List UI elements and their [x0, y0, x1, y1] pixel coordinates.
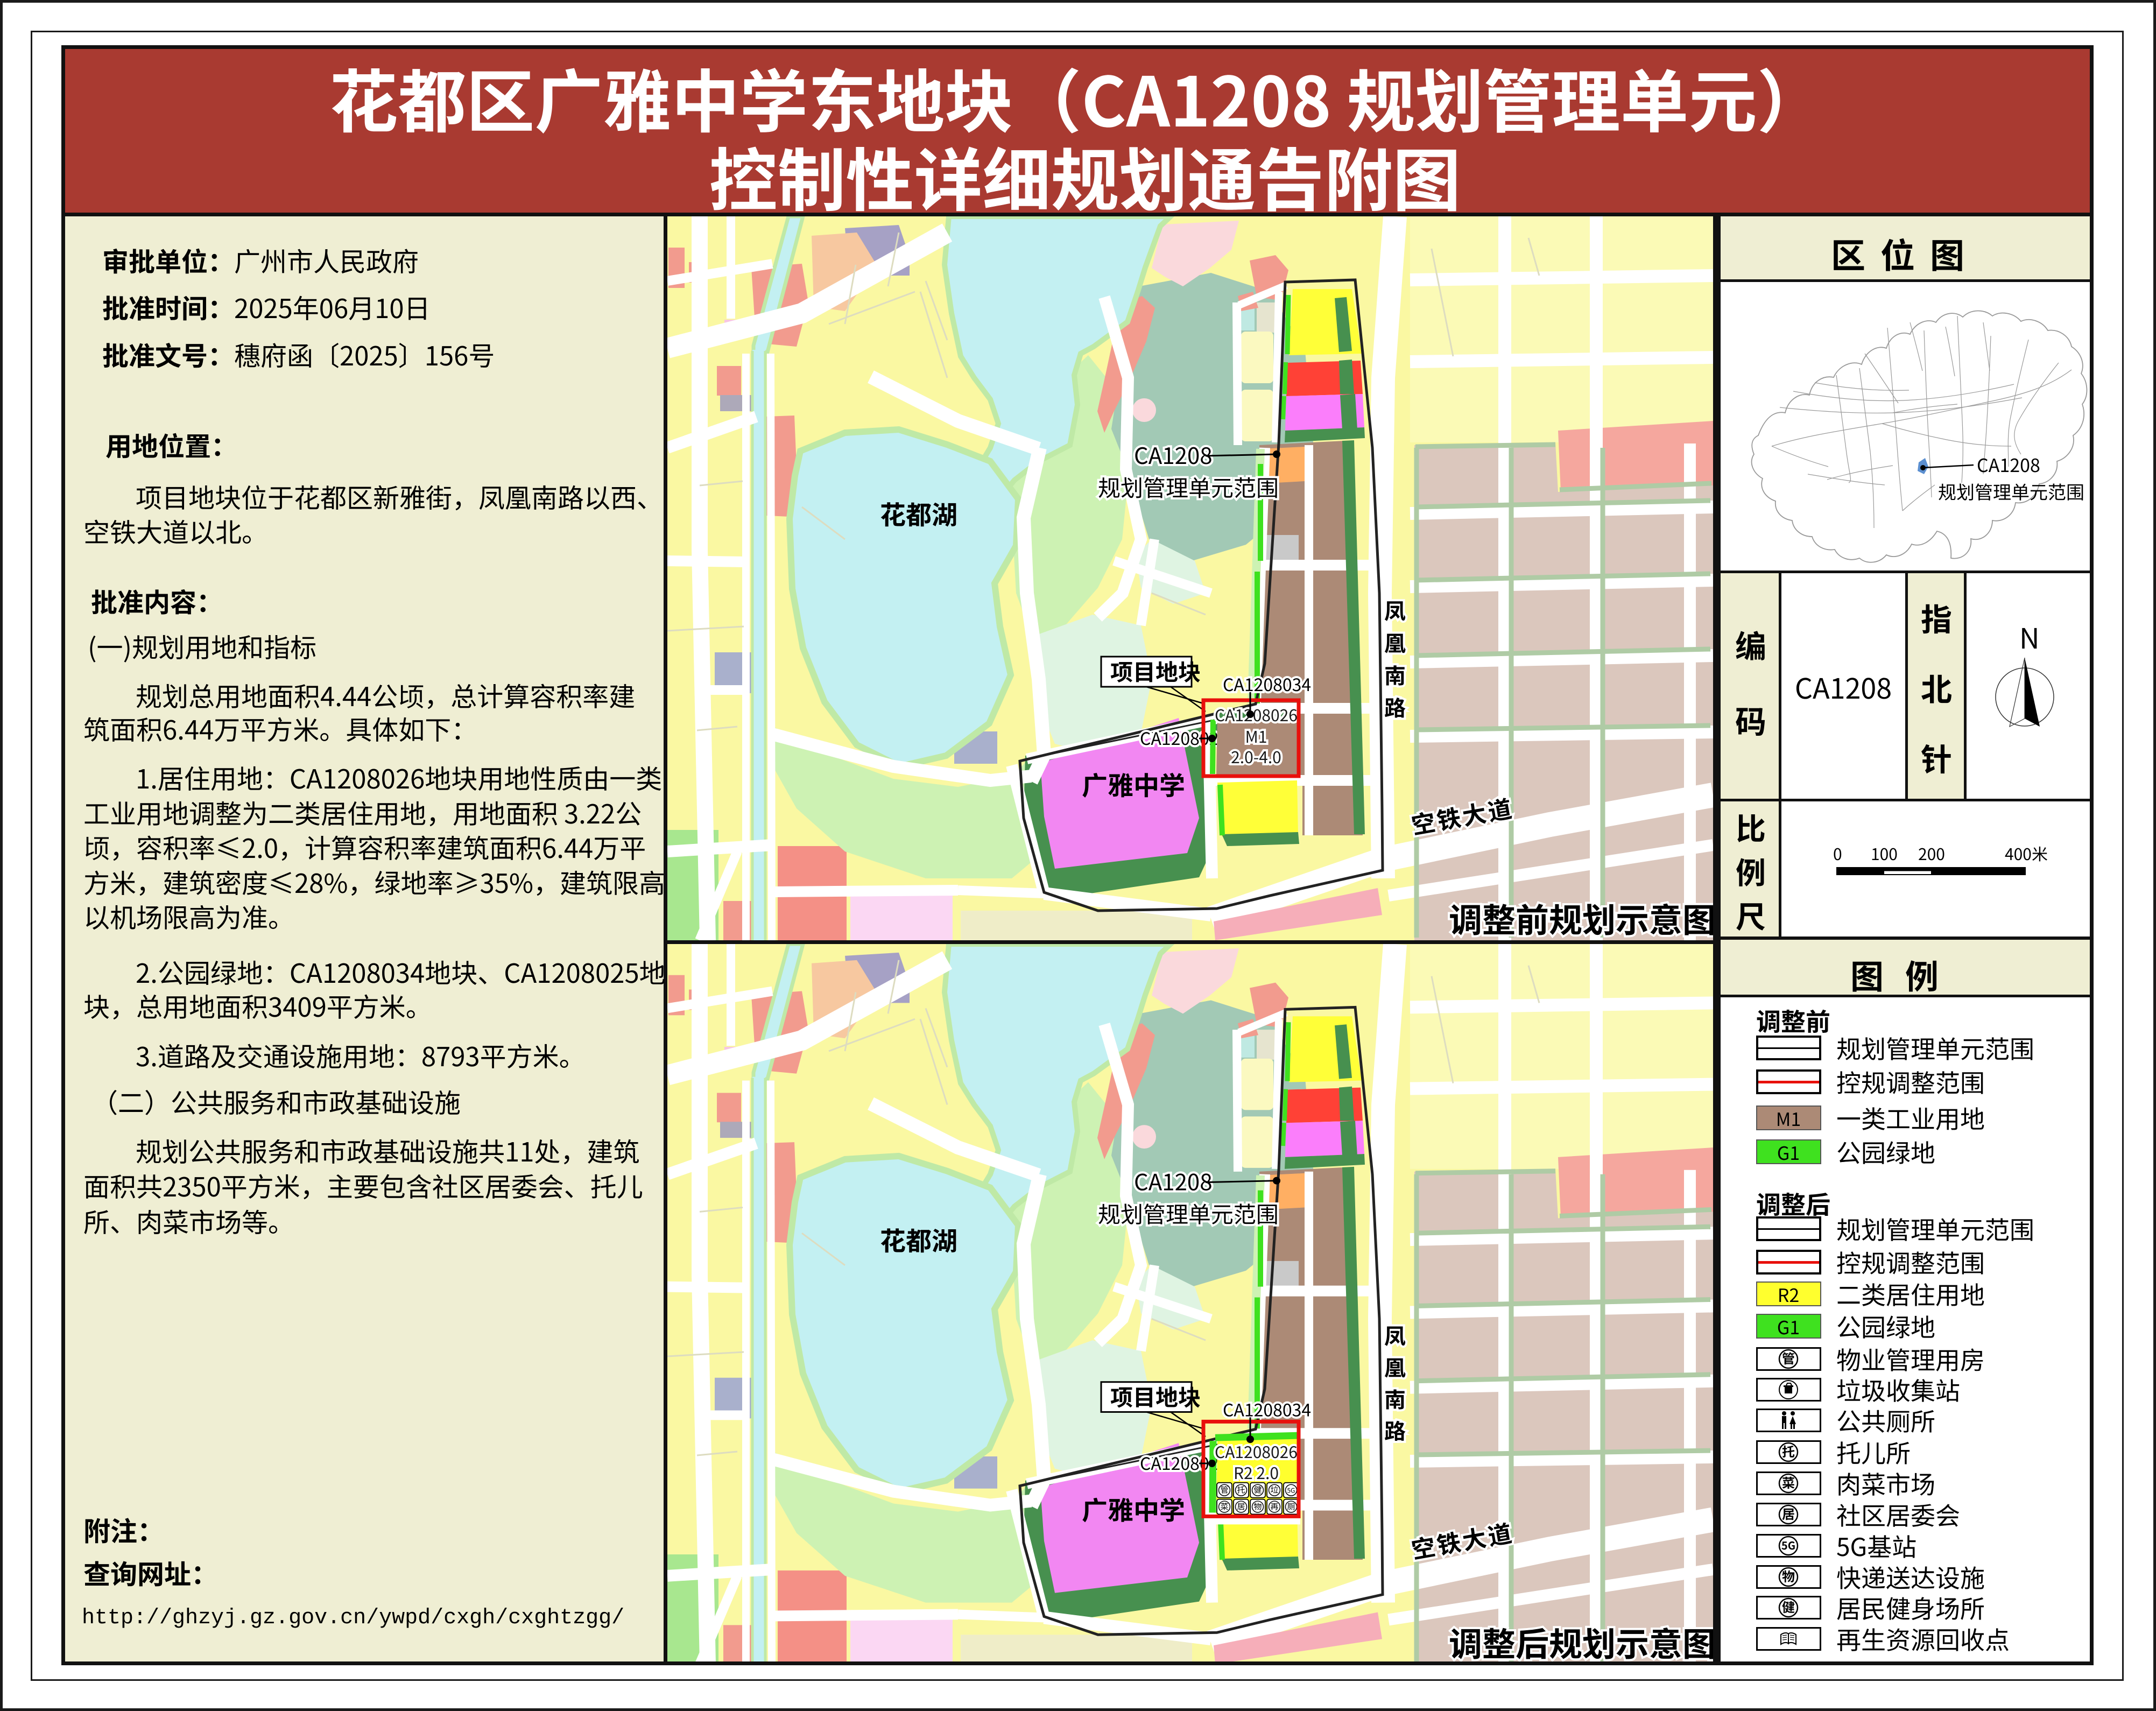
svg-text:居: 居 — [1237, 1501, 1245, 1512]
svg-text:健: 健 — [1782, 1597, 1795, 1616]
svg-text:2.0-4.0: 2.0-4.0 — [1231, 744, 1281, 768]
svg-text:托: 托 — [1237, 1484, 1245, 1496]
svg-text:0: 0 — [1833, 845, 1842, 865]
svg-text:CA1208026: CA1208026 — [1215, 702, 1298, 726]
svg-text:规划管理单元范围: 规划管理单元范围 — [1938, 478, 2084, 504]
svg-text:R2 2.0: R2 2.0 — [1234, 1460, 1279, 1484]
svg-text:托: 托 — [1782, 1441, 1795, 1460]
svg-text:5G: 5G — [1781, 1537, 1795, 1553]
svg-text:管: 管 — [1220, 1484, 1228, 1496]
svg-text:CA1208: CA1208 — [1977, 451, 2040, 477]
svg-text:调整后规划示意图: 调整后规划示意图 — [1449, 1617, 1713, 1661]
svg-text:5G: 5G — [1287, 1486, 1295, 1495]
svg-text:100: 100 — [1871, 845, 1898, 865]
svg-text:厕: 厕 — [1287, 1501, 1295, 1512]
svg-text:400米: 400米 — [2005, 845, 2048, 865]
svg-text:居: 居 — [1782, 1504, 1795, 1523]
svg-text:再: 再 — [1270, 1501, 1278, 1512]
svg-text:管: 管 — [1782, 1348, 1795, 1367]
svg-text:垃: 垃 — [1270, 1484, 1278, 1496]
svg-text:健: 健 — [1253, 1484, 1262, 1496]
svg-text:物: 物 — [1782, 1566, 1795, 1585]
svg-text:200: 200 — [1918, 845, 1945, 865]
svg-text:菜: 菜 — [1782, 1473, 1795, 1491]
svg-text:N: N — [2019, 624, 2040, 657]
svg-text:CA1208026: CA1208026 — [1215, 1439, 1298, 1463]
svg-text:调整前规划示意图: 调整前规划示意图 — [1449, 893, 1713, 940]
svg-text:菜: 菜 — [1220, 1501, 1228, 1512]
svg-text:物: 物 — [1253, 1501, 1262, 1512]
